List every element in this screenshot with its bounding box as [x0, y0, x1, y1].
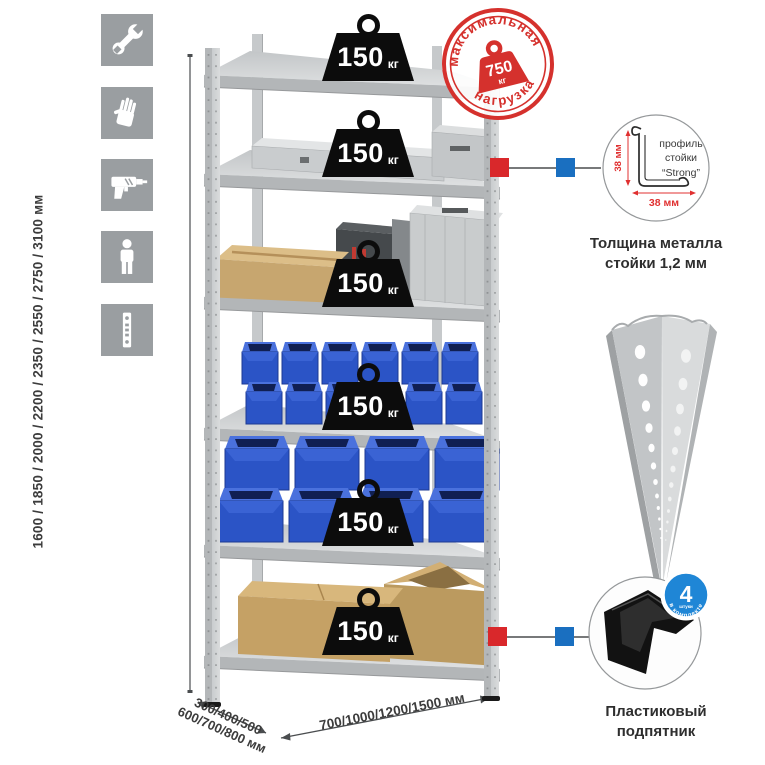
shelf-load-badge-4: 150 кг — [322, 363, 414, 430]
shelf-load-badge-1: 150 кг — [322, 14, 414, 81]
profile-dim-height-text: 38 мм — [613, 144, 624, 171]
red-marker-square — [490, 158, 509, 177]
profile-caption: Толщина металла стойки 1,2 мм — [572, 234, 740, 275]
shelf-load-badge-2: 150 кг — [322, 110, 414, 177]
weight-body: 150 кг — [322, 382, 414, 430]
weight-value: 150 — [337, 391, 384, 422]
perforated-post-icon — [101, 304, 153, 356]
shelf-load-badge-3: 150 кг — [322, 240, 414, 307]
profile-label-2: стойки — [665, 152, 697, 164]
height-dimension-label: 1600 / 1850 / 2000 / 2200 / 2350 / 2550 … — [31, 172, 46, 572]
profile-callout-line — [490, 158, 601, 177]
product-infographic: максимальная нагрузка 750 кг 3 — [0, 0, 765, 765]
weight-body: 150 кг — [322, 129, 414, 177]
weight-handle-icon — [357, 110, 380, 133]
weight-body: 150 кг — [322, 498, 414, 546]
badge-sub-text: штуки — [679, 604, 693, 609]
gloves-icon — [101, 87, 153, 139]
weight-value: 150 — [337, 507, 384, 538]
weight-value: 150 — [337, 42, 384, 73]
weight-unit: кг — [388, 406, 399, 420]
weight-unit: кг — [388, 153, 399, 167]
front-left-post — [203, 48, 221, 707]
count-badge: 4 штуки в комплекте — [661, 570, 712, 621]
weight-body: 150 кг — [322, 33, 414, 81]
weight-handle-icon — [357, 479, 380, 502]
red-marker-square — [488, 627, 507, 646]
weight-handle-icon — [357, 240, 380, 263]
weight-unit: кг — [388, 57, 399, 71]
profile-label-3: “Strong” — [662, 167, 700, 179]
weight-body: 150 кг — [322, 259, 414, 307]
blue-marker-square — [556, 158, 575, 177]
front-right-post — [482, 60, 500, 701]
wrench-icon — [101, 14, 153, 66]
blue-marker-square — [555, 627, 574, 646]
weight-value: 150 — [337, 268, 384, 299]
person-icon — [101, 231, 153, 283]
foot-caption: Пластиковый подпятник — [572, 702, 740, 743]
profile-detail: 38 мм 38 мм профиль стойки “Strong” — [603, 115, 709, 221]
weight-unit: кг — [388, 283, 399, 297]
weight-handle-icon — [357, 588, 380, 611]
shelf-load-badge-5: 150 кг — [322, 479, 414, 546]
weight-handle-icon — [357, 363, 380, 386]
shelf-load-badge-6: 150 кг — [322, 588, 414, 655]
weight-value: 150 — [337, 138, 384, 169]
weight-unit: кг — [388, 631, 399, 645]
foot-detail: 4 штуки в комплекте — [589, 570, 712, 690]
angle-post-image — [606, 316, 717, 583]
max-load-stamp: максимальная нагрузка 750 кг — [433, 0, 564, 129]
height-dimension-line — [188, 54, 193, 693]
weight-value: 150 — [337, 616, 384, 647]
weight-unit: кг — [388, 522, 399, 536]
weight-handle-icon — [357, 14, 380, 37]
profile-label-1: профиль — [659, 138, 703, 150]
profile-dim-width-text: 38 мм — [649, 197, 679, 209]
drill-icon — [101, 159, 153, 211]
weight-body: 150 кг — [322, 607, 414, 655]
foot-callout-line — [488, 627, 589, 646]
